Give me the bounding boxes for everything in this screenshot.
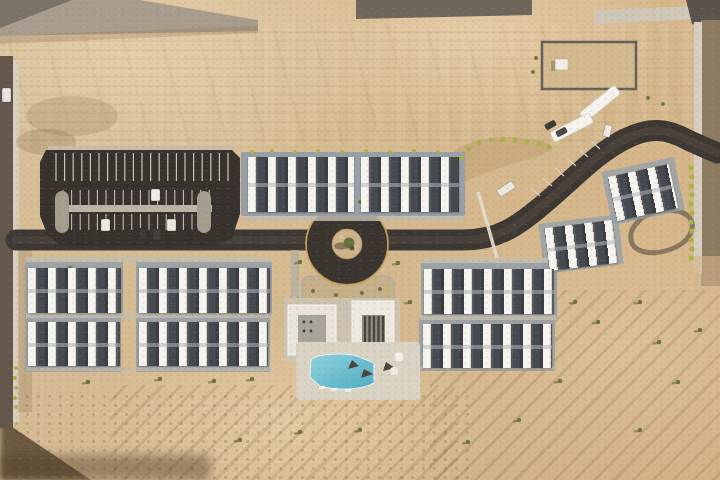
courtyard-table-3 xyxy=(303,330,306,333)
path-top-right xyxy=(594,6,700,24)
car-lot-dark-3 xyxy=(184,229,192,240)
clubhouse-courtyard xyxy=(298,315,326,343)
bush xyxy=(657,340,661,344)
bush xyxy=(250,377,254,381)
walk-mid-west xyxy=(26,313,272,318)
bush xyxy=(412,149,416,153)
car-lot-south-1 xyxy=(101,219,110,231)
bush xyxy=(56,298,60,302)
bush xyxy=(459,156,464,161)
walk-above-b-east xyxy=(422,258,556,263)
bush xyxy=(358,428,362,432)
bush xyxy=(689,166,694,171)
bush xyxy=(436,150,440,154)
road-tick-2 xyxy=(543,178,552,186)
car-compound-1 xyxy=(544,120,557,130)
walk-below-c-east xyxy=(420,366,556,370)
bush xyxy=(316,149,320,153)
road-top-mid xyxy=(356,0,532,19)
bush xyxy=(13,396,17,400)
bush xyxy=(14,386,18,390)
bush xyxy=(212,379,216,383)
bush xyxy=(86,380,90,384)
bush xyxy=(388,150,392,154)
pad-row-north xyxy=(241,152,465,216)
bush xyxy=(547,145,552,150)
parking-island-east xyxy=(197,191,211,233)
bush xyxy=(293,150,297,154)
bush xyxy=(689,202,694,207)
bush xyxy=(690,193,695,198)
bush xyxy=(451,189,455,193)
bush xyxy=(638,428,642,432)
bush xyxy=(454,168,459,173)
bush xyxy=(517,418,521,422)
bush xyxy=(689,220,694,225)
pool-umbrella-white-1 xyxy=(395,353,404,362)
courtyard-table-2 xyxy=(310,321,313,324)
island-rock-1 xyxy=(339,235,343,239)
bush xyxy=(513,138,518,143)
bush xyxy=(690,175,695,180)
walk-mid-east xyxy=(420,315,556,320)
bush xyxy=(531,70,535,74)
aerial-photograph-desert-resort xyxy=(0,0,720,480)
bush xyxy=(310,198,314,202)
bush xyxy=(364,149,368,153)
compound-building-shadow xyxy=(551,61,555,71)
bush xyxy=(489,138,494,143)
bush xyxy=(466,440,470,444)
site-plan-layer xyxy=(0,0,720,480)
bush xyxy=(396,261,400,265)
island-shrub-2 xyxy=(350,246,355,251)
car-lot-dark-2 xyxy=(153,229,161,240)
bush xyxy=(573,300,577,304)
bush xyxy=(638,300,642,304)
bush xyxy=(698,328,702,332)
road-tick-1 xyxy=(531,188,540,196)
bush xyxy=(340,150,344,154)
bush xyxy=(646,96,650,100)
bush xyxy=(311,289,315,293)
parking-island-west xyxy=(55,191,69,233)
trailer-2 xyxy=(550,113,594,143)
bush xyxy=(534,56,538,60)
bush xyxy=(378,287,382,291)
car-lot-center xyxy=(151,189,160,201)
walk-below-c-west xyxy=(26,367,272,371)
pad-c1 xyxy=(25,316,121,372)
road-tick-4 xyxy=(567,158,576,166)
pad-b2 xyxy=(136,262,272,318)
bush xyxy=(44,330,48,334)
bush xyxy=(477,141,482,146)
bush xyxy=(116,300,120,304)
bush xyxy=(690,247,695,252)
bush xyxy=(676,380,680,384)
pool-umbrella-white-2 xyxy=(390,367,398,375)
bush xyxy=(14,366,18,370)
bush xyxy=(13,376,17,380)
walk-under-north-row xyxy=(243,216,463,221)
walk-above-b-west xyxy=(26,257,270,262)
pad-c3 xyxy=(419,318,555,371)
bush xyxy=(453,179,457,183)
bush xyxy=(558,379,562,383)
lounger-1 xyxy=(319,386,325,390)
compound-building xyxy=(555,59,568,70)
parking-center-walk xyxy=(60,205,212,212)
bush xyxy=(689,256,694,261)
street-right-fade xyxy=(694,256,720,292)
courtyard-table-1 xyxy=(303,321,306,324)
bush xyxy=(689,184,694,189)
path-road-to-club xyxy=(291,250,299,302)
bush xyxy=(525,140,530,145)
lounger-3 xyxy=(345,389,351,393)
bush xyxy=(328,202,332,206)
car-lot-dark-1 xyxy=(139,228,147,239)
bush xyxy=(334,293,338,297)
bush xyxy=(501,137,506,142)
bush xyxy=(690,211,695,216)
bush xyxy=(250,150,254,154)
road-tick-3 xyxy=(555,168,564,176)
truck-on-road xyxy=(496,181,515,198)
bush xyxy=(596,320,600,324)
bush xyxy=(358,200,362,204)
bush xyxy=(158,377,162,381)
bush xyxy=(270,149,274,153)
courtyard-table-4 xyxy=(310,330,313,333)
pad-b3 xyxy=(421,263,557,318)
bush xyxy=(238,438,242,442)
car-lot-south-2 xyxy=(167,219,176,231)
bush xyxy=(408,300,412,304)
bush xyxy=(689,238,694,243)
pad-c2 xyxy=(136,316,270,372)
pad-b1 xyxy=(25,262,123,318)
parking-curb-top xyxy=(48,146,234,150)
bush xyxy=(537,142,542,147)
bush xyxy=(376,197,380,201)
bush xyxy=(14,405,18,409)
bush xyxy=(661,102,665,106)
lounger-2 xyxy=(331,388,337,392)
bush xyxy=(690,229,695,234)
car-left-street xyxy=(2,88,11,102)
bush xyxy=(298,430,302,434)
bush xyxy=(298,260,302,264)
bush xyxy=(467,147,472,152)
bush xyxy=(68,266,72,270)
bush xyxy=(360,291,364,295)
